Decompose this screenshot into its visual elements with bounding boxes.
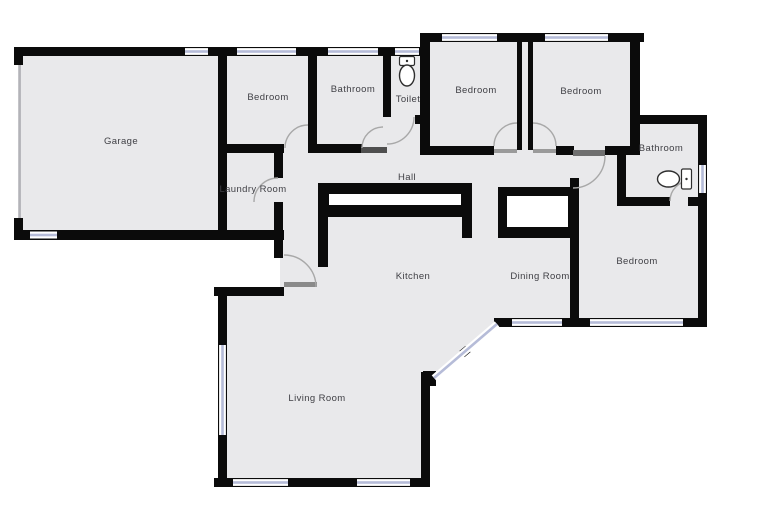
threshold-hall-bedroom-right <box>573 150 605 156</box>
wall-east-perimeter <box>698 115 707 327</box>
window-dining-bottom <box>512 321 562 324</box>
room-label-dining: Dining Room <box>510 271 569 282</box>
wall-bed1-bath-divider <box>308 47 317 153</box>
room-label-hall: Hall <box>398 172 416 183</box>
wall-bathroom-right-bottom <box>617 197 670 206</box>
threshold-bathroom-top <box>361 147 387 153</box>
room-label-toilet: Toilet <box>396 94 421 105</box>
threshold-bedroom3 <box>533 149 556 153</box>
wall-living-right <box>421 372 430 487</box>
garage-door-line <box>18 65 21 218</box>
window-bedroom3-top <box>545 36 608 39</box>
room-label-bedroom-right: Bedroom <box>616 256 657 267</box>
room-label-bathroom-top: Bathroom <box>331 84 375 95</box>
wall-bed-divider-a <box>517 42 522 150</box>
window-living-left <box>221 345 224 435</box>
threshold-hall-living <box>284 282 317 287</box>
wall-bedroom3-bottom-a <box>556 146 574 155</box>
wall-diagonal-corner <box>423 371 436 386</box>
toilet-icon <box>658 169 692 189</box>
window-bedroom1-top <box>237 50 296 53</box>
window-living-bottom-left <box>233 481 288 484</box>
threshold-bedroom2 <box>494 149 517 153</box>
kitchen-counter-slot <box>329 194 461 205</box>
wall-garage-left-top <box>14 47 23 65</box>
wall-bath-toilet-divider <box>383 47 391 117</box>
floor-plan-page: Garage Bedroom Bathroom Toilet Bedroom B… <box>0 0 768 512</box>
wall-garage-divider <box>218 47 227 240</box>
room-label-garage: Garage <box>104 136 138 147</box>
window-bedroom-right-bottom <box>590 321 683 324</box>
wall-bedroom3-right <box>630 33 640 155</box>
floor-plan-drawing: Garage Bedroom Bathroom Toilet Bedroom B… <box>0 0 768 512</box>
room-label-bathroom-right: Bathroom <box>639 143 683 154</box>
room-label-bedroom-top-middle: Bedroom <box>455 85 496 96</box>
window-bedroom2-top <box>442 36 497 39</box>
wall-corridor-lower <box>274 202 283 258</box>
toilet-icon <box>400 57 415 87</box>
wall-bathroom-right-left <box>617 150 626 203</box>
window-garage-bottom <box>30 234 57 237</box>
stairs-well <box>507 196 568 227</box>
room-label-bedroom-top-left: Bedroom <box>247 92 288 103</box>
window-garage-top <box>185 50 208 53</box>
wall-toilet-stub <box>415 115 429 124</box>
wall-garage-left-bottom <box>14 218 23 240</box>
kitchen-wall-stub-right <box>462 217 472 238</box>
wall-bathroom-top-bottom <box>308 144 362 153</box>
room-label-bedroom-top-right: Bedroom <box>560 86 601 97</box>
wall-living-top <box>214 287 284 296</box>
window-toilet-top <box>395 50 419 53</box>
wall-bed-divider-b <box>528 42 533 150</box>
wall-corridor-upper <box>274 148 283 178</box>
window-living-bottom-right <box>357 481 410 484</box>
wall-bedroom2-bottom <box>429 146 494 155</box>
window-bathroom-top <box>328 50 378 53</box>
wall-bathroom-right-top <box>630 115 707 124</box>
kitchen-wall-stub-left <box>318 217 328 267</box>
wall-jog-toilet-right <box>420 33 430 155</box>
room-label-living: Living Room <box>288 393 345 404</box>
room-label-kitchen: Kitchen <box>396 271 431 282</box>
wall-bathroom-right-corner <box>688 197 700 206</box>
room-label-laundry: Laundry Room <box>219 184 286 195</box>
window-bathroom-right <box>701 165 704 193</box>
floor-area <box>18 37 703 483</box>
